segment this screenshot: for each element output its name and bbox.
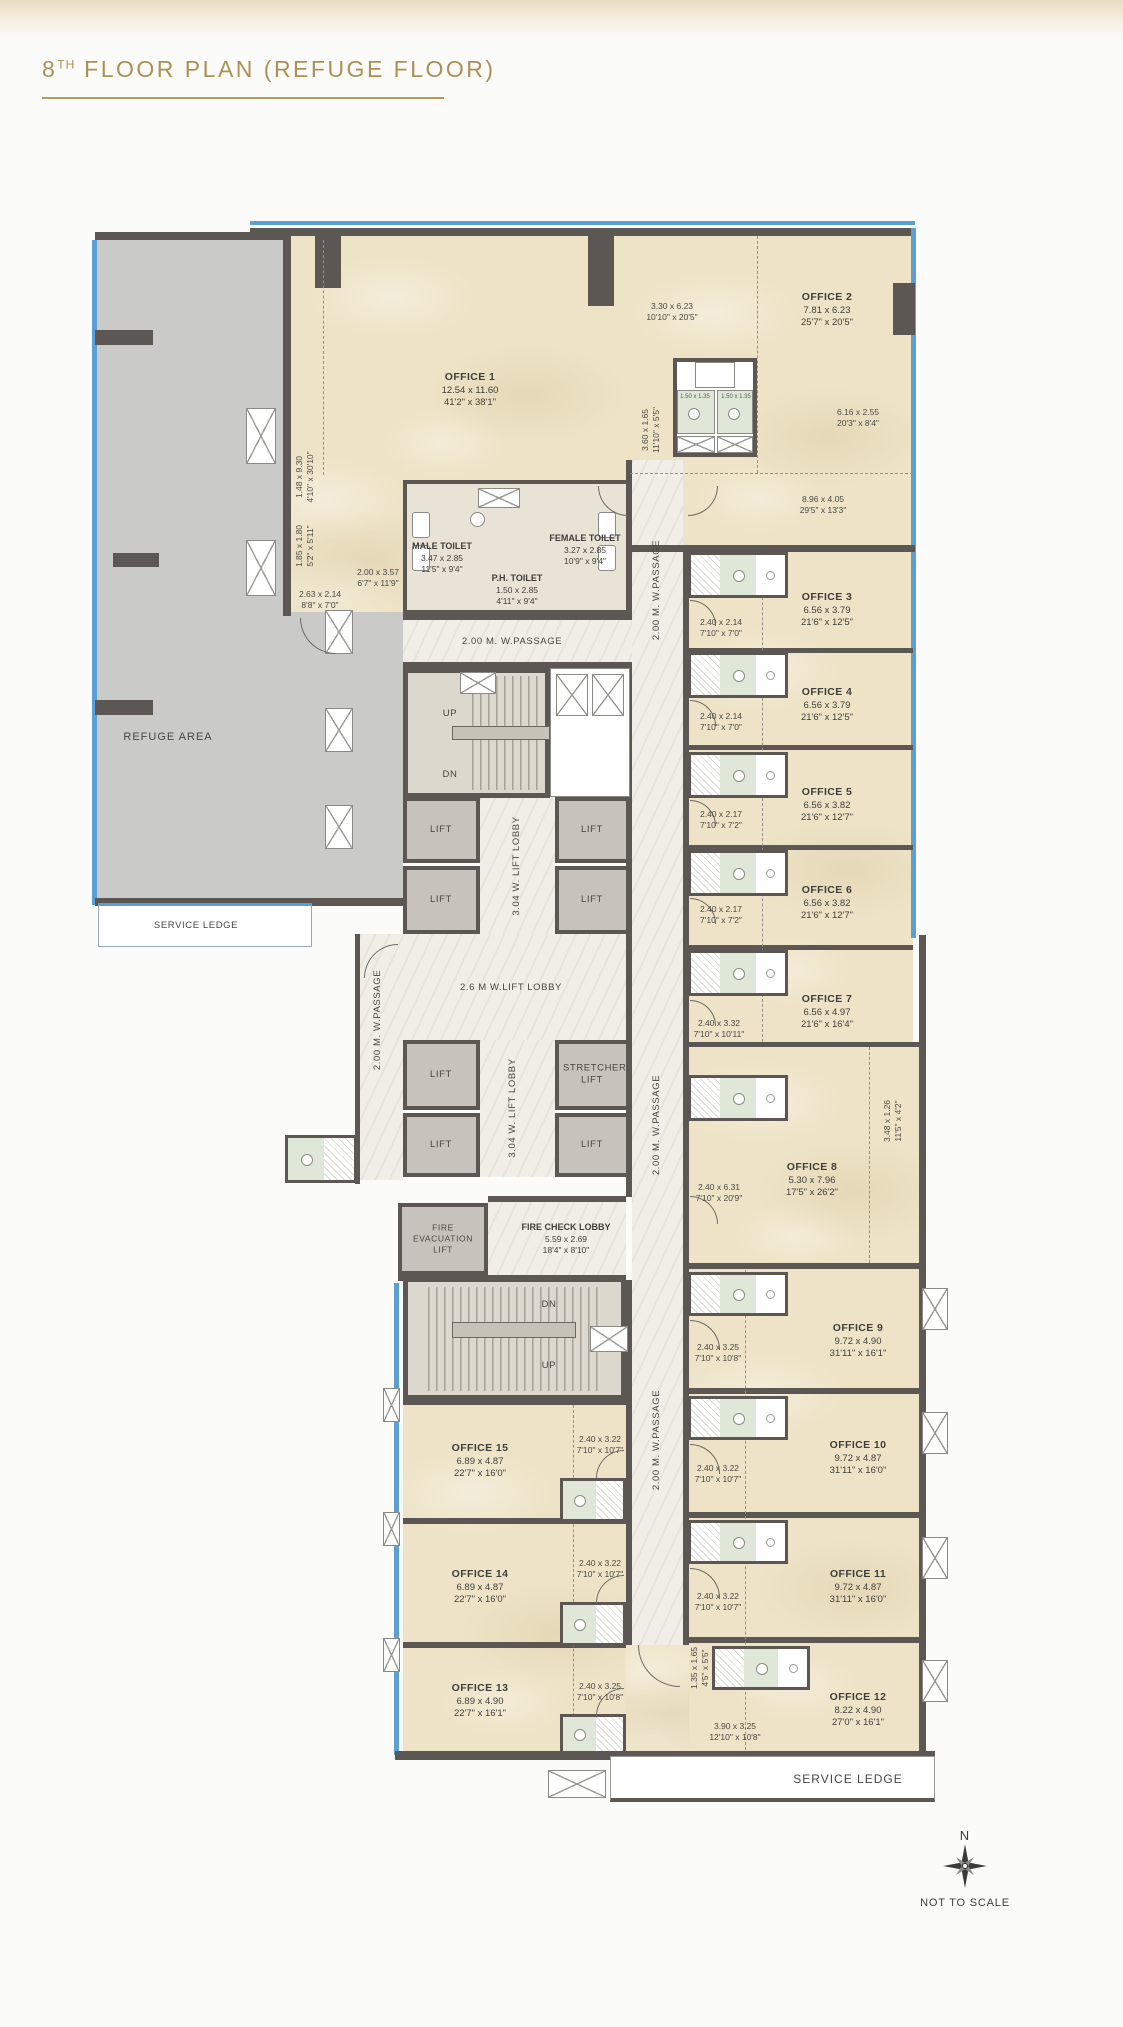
passage-label: 2.00 M. W.PASSAGE (372, 970, 384, 1070)
dim-i: 4'10" x 30'10" (305, 451, 315, 502)
window-column (325, 805, 353, 849)
dim-i: 4'5" x 5'5" (700, 1649, 710, 1686)
toilet-icon (574, 1495, 586, 1507)
toilet-icon (733, 968, 745, 980)
dim-label: 2.40 x 3.227'10" x 10'7" (577, 1558, 624, 1580)
room-dim-i: 4'11" x 9'4" (496, 596, 537, 606)
wc-unit (688, 850, 788, 896)
dim-label: 8.96 x 4.0529'5" x 13'3" (800, 494, 847, 516)
stair-up-label: UP (443, 708, 457, 720)
wall-passage-top (403, 614, 632, 620)
dim-label: 2.40 x 3.257'10" x 10'8" (695, 1342, 742, 1364)
window-column (383, 1638, 400, 1672)
office-13-label: OFFICE 136.89 x 4.9022'7" x 16'1" (452, 1682, 509, 1720)
dim-label: 2.00 x 3.576'7" x 11'9" (357, 567, 399, 589)
stair-landing (452, 726, 550, 740)
wc-cell (563, 1717, 596, 1751)
office-8-label: OFFICE 85.30 x 7.9617'5" x 26'2" (786, 1161, 838, 1199)
dashed-line (869, 1047, 870, 1263)
stair-up-label: UP (542, 1360, 556, 1372)
office-name: OFFICE 3 (801, 591, 853, 605)
dim-i: 5'2" x 5'11" (305, 525, 315, 566)
office-name: OFFICE 13 (452, 1682, 509, 1696)
office-dim-m: 9.72 x 4.90 (834, 1335, 881, 1346)
fire-evacuation-lift-label: FIRE EVACUATION LIFT (404, 1222, 482, 1255)
office-dim-i: 21'6" x 12'5" (801, 617, 853, 628)
toilet-icon (733, 1537, 745, 1549)
dim-label: 2.40 x 2.147'10" x 7'0" (700, 711, 742, 733)
stair-dn-label: DN (443, 769, 458, 781)
office-dim-m: 8.22 x 4.90 (834, 1704, 881, 1715)
office-dim-i: 17'5" x 26'2" (786, 1187, 838, 1198)
entry-shelf (756, 1078, 785, 1118)
passage-label: 2.00 M. W.PASSAGE (651, 1075, 663, 1175)
dim-i: 11'10" x 5'5" (651, 407, 661, 453)
window-column (246, 408, 276, 464)
shaft-vent (556, 674, 588, 716)
toilet-icon (733, 1093, 745, 1105)
dim-i: 7'10" x 7'2" (700, 820, 742, 830)
stair-treads (428, 1287, 600, 1391)
toilet-icon (733, 868, 745, 880)
wc-cell (288, 1138, 324, 1180)
office-dim-i: 21'6" x 12'5" (801, 712, 853, 723)
office-name: OFFICE 1 (442, 371, 499, 385)
male-toilet-label: MALE TOILET3.47 x 2.8511'5" x 9'4" (412, 541, 472, 575)
toilet-icon (574, 1729, 586, 1741)
dim-label: 2.40 x 3.257'10" x 10'8" (577, 1681, 624, 1703)
room-dim-m: 5.59 x 2.69 (545, 1234, 587, 1244)
refuge-area-floor-2 (283, 612, 403, 905)
passage-label: 2.00 M. W.PASSAGE (462, 636, 562, 648)
column-stub (893, 283, 915, 335)
dim-label: 3.60 x 1.6511'10" x 5'5" (640, 407, 662, 453)
office-name: OFFICE 2 (801, 291, 853, 305)
toilet-icon (733, 570, 745, 582)
office-11-label: OFFICE 119.72 x 4.8731'11" x 16'0" (830, 1568, 887, 1606)
office-name: OFFICE 4 (801, 686, 853, 700)
office-12-label: OFFICE 128.22 x 4.9027'0" x 16'1" (830, 1691, 887, 1729)
wc-dim-label: 1.50 x 1.35 (680, 394, 710, 402)
shaft-vent (592, 674, 624, 716)
shaft-hatch (691, 1078, 720, 1118)
wall-right-lower (919, 935, 926, 1760)
wall-fire-lobby-top (488, 1196, 626, 1202)
office-9-label: OFFICE 99.72 x 4.9031'11" x 16'1" (830, 1322, 887, 1360)
dim-i: 8'8" x 7'0" (301, 600, 338, 610)
office-15-label: OFFICE 156.89 x 4.8722'7" x 16'0" (452, 1442, 509, 1480)
room-dim-m: 1.50 x 2.85 (496, 585, 538, 595)
compass-rose-icon (942, 1843, 988, 1889)
room-dim-i: 11'5" x 9'4" (421, 564, 462, 574)
office-name: OFFICE 14 (452, 1568, 509, 1582)
dim-label: 2.40 x 2.177'10" x 7'2" (700, 904, 742, 926)
shaft-hatch (691, 555, 720, 595)
office-dim-i: 31'11" x 16'0" (830, 1594, 887, 1605)
toilet-fixture (412, 512, 430, 538)
office-6-label: OFFICE 66.56 x 3.8221'6" x 12'7" (801, 884, 853, 922)
office-dim-i: 22'7" x 16'0" (454, 1468, 506, 1479)
meter-box (695, 362, 735, 388)
washbasin-icon (766, 1290, 775, 1299)
entry-shelf (756, 755, 785, 795)
washbasin-icon (766, 869, 775, 878)
dim-i: 7'10" x 10'7" (577, 1445, 624, 1455)
column-stub (315, 236, 341, 288)
dim-m: 2.40 x 3.25 (579, 1681, 621, 1691)
dim-m: 2.40 x 3.25 (697, 1342, 739, 1352)
office-dim-m: 5.30 x 7.96 (788, 1174, 835, 1185)
washbasin-icon (766, 969, 775, 978)
dim-m: 2.40 x 6.31 (698, 1182, 740, 1192)
wc-unit (688, 752, 788, 798)
washbasin (470, 512, 485, 527)
office-5-label: OFFICE 56.56 x 3.8221'6" x 12'7" (801, 786, 853, 824)
lift-label: LIFT (430, 1069, 452, 1081)
washbasin-icon (766, 1414, 775, 1423)
office-dim-i: 21'6" x 12'7" (801, 910, 853, 921)
entry-shelf (756, 555, 785, 595)
office-name: OFFICE 10 (830, 1439, 887, 1453)
shaft-hatch (324, 1138, 354, 1180)
office-dim-m: 6.56 x 3.82 (803, 799, 850, 810)
office-10-label: OFFICE 109.72 x 4.8731'11" x 16'0" (830, 1439, 887, 1477)
office-dim-i: 31'11" x 16'0" (830, 1465, 887, 1476)
dim-i: 7'10" x 10'7" (695, 1474, 742, 1484)
wc-cell (720, 1078, 755, 1118)
not-to-scale-label: NOT TO SCALE (920, 1897, 1010, 1909)
wc-dim-label: 1.50 x 1.35 (721, 394, 751, 402)
office-dim-m: 12.54 x 11.60 (442, 384, 499, 395)
dim-i: 7'10" x 7'0" (700, 722, 742, 732)
office-dim-m: 9.72 x 4.87 (834, 1581, 881, 1592)
washbasin-icon (766, 1538, 775, 1547)
dim-m: 2.40 x 3.22 (697, 1463, 739, 1473)
toilet-icon (733, 770, 745, 782)
dim-m: 3.30 x 6.23 (651, 301, 693, 311)
office-dim-m: 6.56 x 3.79 (803, 604, 850, 615)
window-column (246, 540, 276, 596)
dim-i: 7'10" x 7'0" (700, 628, 742, 638)
room-dim-i: 10'9" x 9'4" (564, 556, 606, 566)
shaft-vent (590, 1326, 628, 1352)
room-dim-m: 3.47 x 2.85 (421, 553, 463, 563)
office-1-floor (290, 236, 630, 480)
entry-shelf (756, 1399, 785, 1437)
compass-north-label: N (960, 1828, 970, 1843)
office-3-label: OFFICE 36.56 x 3.7921'6" x 12'5" (801, 591, 853, 629)
shaft-hatch (691, 655, 720, 695)
office-name: OFFICE 5 (801, 786, 853, 800)
dim-m: 3.60 x 1.65 (640, 409, 650, 451)
office-dim-i: 21'6" x 16'4" (801, 1019, 853, 1030)
dim-i: 7'10" x 10'11" (694, 1029, 745, 1039)
wall-div-office-9-10 (689, 1388, 919, 1394)
dim-i: 11'5" x 4'2" (893, 1100, 903, 1141)
dim-label: 2.63 x 2.148'8" x 7'0" (299, 589, 341, 611)
toilet-icon (574, 1619, 586, 1631)
office-dim-m: 6.56 x 3.82 (803, 897, 850, 908)
washbasin-icon (766, 771, 775, 780)
dim-m: 2.40 x 3.22 (579, 1434, 621, 1444)
dim-m: 2.40 x 2.17 (700, 904, 742, 914)
wc-unit (688, 652, 788, 698)
dim-m: 2.40 x 3.22 (579, 1558, 621, 1568)
wc-unit (688, 1520, 788, 1564)
office-1-label: OFFICE 112.54 x 11.6041'2" x 38'1" (442, 371, 499, 409)
office-14-label: OFFICE 146.89 x 4.8722'7" x 16'0" (452, 1568, 509, 1606)
wall-stub-refuge (95, 330, 153, 345)
wc-cell (720, 1399, 755, 1437)
shaft-hatch (691, 953, 720, 993)
dashed-line (323, 240, 324, 475)
room-name: MALE TOILET (412, 541, 472, 553)
washbasin-icon (789, 1664, 798, 1673)
wc-cell (720, 853, 755, 893)
room-name: P.H. TOILET (492, 573, 543, 585)
glazing-top (250, 221, 915, 225)
dim-i: 12'10" x 10'8" (709, 1732, 760, 1742)
office-dim-m: 6.56 x 3.79 (803, 699, 850, 710)
dim-i: 7'10" x 20'9" (696, 1193, 743, 1203)
office-name: OFFICE 6 (801, 884, 853, 898)
toilet-icon (733, 1289, 745, 1301)
dim-i: 10'10" x 20'5" (646, 312, 697, 322)
wall-stub-refuge (113, 553, 159, 567)
window-column (325, 708, 353, 752)
wc-unit (560, 1602, 626, 1646)
toilet-fixture (688, 408, 700, 420)
window-column (922, 1288, 948, 1330)
dim-m: 2.40 x 2.17 (700, 809, 742, 819)
entry-shelf (756, 655, 785, 695)
office-name: OFFICE 12 (830, 1691, 887, 1705)
dim-label: 1.35 x 1.654'5" x 5'5" (689, 1647, 711, 1689)
wall-under-band (630, 545, 915, 552)
wall-div-office-8-9 (689, 1263, 919, 1269)
wc-cell (720, 1523, 755, 1561)
entry-shelf (778, 1649, 807, 1687)
wc-unit (688, 1075, 788, 1121)
washbasin-icon (766, 671, 775, 680)
shaft-hatch (691, 1523, 720, 1561)
entry-shelf (756, 1275, 785, 1313)
dim-i: 7'10" x 10'8" (577, 1692, 624, 1702)
dashed-line (573, 1405, 574, 1751)
window-column (922, 1412, 948, 1454)
wc-unit (688, 1272, 788, 1316)
floor-plan: OFFICE 112.54 x 11.6041'2" x 38'1" OFFIC… (0, 0, 1123, 2027)
lift-label: LIFT (581, 894, 603, 906)
toilet-icon (733, 1413, 745, 1425)
lift-lobby-label: 3.04 W. LIFT LOBBY (511, 816, 523, 915)
lift-label: LIFT (430, 1139, 452, 1151)
shaft-vent (677, 436, 715, 453)
office-7-label: OFFICE 76.56 x 4.9721'6" x 16'4" (801, 993, 853, 1031)
wc-cell (720, 1275, 755, 1313)
room-dim-i: 18'4" x 8'10" (543, 1245, 590, 1255)
wc-unit (688, 950, 788, 996)
office-dim-i: 41'2" x 38'1" (444, 397, 496, 408)
washbasin-icon (766, 571, 775, 580)
wc-cell (563, 1481, 596, 1519)
office-dim-m: 6.89 x 4.87 (456, 1455, 503, 1466)
office-dim-i: 22'7" x 16'0" (454, 1594, 506, 1605)
refuge-area-label: REFUGE AREA (123, 730, 212, 744)
wall-top (250, 228, 915, 236)
shaft-hatch (691, 1399, 720, 1437)
office-dim-i: 31'11" x 16'1" (830, 1348, 887, 1359)
room-name: FIRE CHECK LOBBY (521, 1222, 610, 1234)
shaft-hatch (596, 1481, 623, 1519)
passage-label: 2.00 M. W.PASSAGE (651, 540, 663, 640)
office-name: OFFICE 8 (786, 1161, 838, 1175)
entry-shelf (756, 1523, 785, 1561)
dim-label: 2.40 x 3.227'10" x 10'7" (695, 1463, 742, 1485)
wc-cell (563, 1605, 596, 1643)
shaft-hatch (596, 1717, 623, 1751)
office-dim-i: 21'6" x 12'7" (801, 812, 853, 823)
dim-m: 8.96 x 4.05 (802, 494, 844, 504)
entry-shelf (756, 953, 785, 993)
office-2-label: OFFICE 27.81 x 6.2325'7" x 20'5" (801, 291, 853, 329)
office-name: OFFICE 9 (830, 1322, 887, 1336)
room-name: FEMALE TOILET (549, 533, 620, 545)
office-dim-m: 6.89 x 4.87 (456, 1581, 503, 1592)
office-dim-m: 6.89 x 4.90 (456, 1695, 503, 1706)
shaft-vent (478, 488, 520, 508)
window-column (383, 1388, 400, 1422)
wall-office-block-left (283, 236, 291, 616)
service-ledge-label: SERVICE LEDGE (154, 920, 238, 932)
dim-label: 2.40 x 2.177'10" x 7'2" (700, 809, 742, 831)
stretcher-lift-label: STRETCHER LIFT (563, 1063, 621, 1088)
dim-i: 29'5" x 13'3" (800, 505, 847, 515)
dim-i: 6'7" x 11'9" (357, 578, 398, 588)
office-dim-m: 6.56 x 4.97 (803, 1006, 850, 1017)
office-name: OFFICE 7 (801, 993, 853, 1007)
entry-shelf (756, 853, 785, 893)
dim-label: 2.40 x 2.147'10" x 7'0" (700, 617, 742, 639)
dim-m: 2.40 x 3.32 (698, 1018, 740, 1028)
dim-m: 2.63 x 2.14 (299, 589, 341, 599)
dim-label: 3.90 x 3.2512'10" x 10'8" (709, 1721, 760, 1743)
compass: N NOT TO SCALE (907, 1828, 1023, 1909)
shaft-hatch (596, 1605, 623, 1643)
dim-label: 2.40 x 3.327'10" x 10'11" (694, 1018, 745, 1040)
shaft-hatch (691, 853, 720, 893)
washbasin-icon (766, 1094, 775, 1103)
shaft-vent (548, 1770, 606, 1798)
wall-stub-refuge (95, 700, 153, 715)
wc-unit (712, 1646, 810, 1690)
dim-m: 1.35 x 1.65 (689, 1647, 699, 1689)
shaft-hatch (715, 1649, 744, 1687)
wall-div-office-10-11 (689, 1512, 919, 1518)
wc-cell (720, 953, 755, 993)
dim-m: 1.48 x 9.30 (294, 456, 304, 498)
toilet-icon (301, 1154, 313, 1166)
dim-i: 7'10" x 7'2" (700, 915, 742, 925)
office-name: OFFICE 15 (452, 1442, 509, 1456)
toilet-fixture (728, 408, 740, 420)
shaft-vent (717, 436, 753, 453)
dim-m: 2.40 x 2.14 (700, 617, 742, 627)
dim-m: 2.40 x 2.14 (700, 711, 742, 721)
wall-refuge-top (95, 232, 291, 240)
stair-landing (452, 1322, 576, 1338)
female-toilet-label: FEMALE TOILET3.27 x 2.8510'9" x 9'4" (549, 533, 620, 567)
wc-unit (688, 552, 788, 598)
toilet-icon (733, 670, 745, 682)
wc-unit (560, 1714, 626, 1754)
lift-label: LIFT (581, 824, 603, 836)
office-dim-m: 9.72 x 4.87 (834, 1452, 881, 1463)
dim-m: 6.16 x 2.55 (837, 407, 879, 417)
office-4-label: OFFICE 46.56 x 3.7921'6" x 12'5" (801, 686, 853, 724)
window-column (383, 1512, 400, 1546)
office-dim-i: 22'7" x 16'1" (454, 1708, 506, 1719)
dim-label: 3.30 x 6.2310'10" x 20'5" (646, 301, 697, 323)
office-dim-m: 7.81 x 6.23 (803, 304, 850, 315)
dim-m: 2.40 x 3.22 (697, 1591, 739, 1601)
room-dim-m: 3.27 x 2.85 (564, 545, 606, 555)
dim-label: 3.48 x 1.2611'5" x 4'2" (882, 1100, 904, 1142)
wc-unit (285, 1135, 357, 1183)
wc-cell (744, 1649, 779, 1687)
stair-dn-label: DN (542, 1299, 557, 1311)
dim-i: 7'10" x 10'7" (577, 1569, 624, 1579)
wc-unit (688, 1396, 788, 1440)
shaft-hatch (691, 755, 720, 795)
lift-label: LIFT (430, 824, 452, 836)
window-column (922, 1537, 948, 1579)
lift-lobby-label: 2.6 M W.LIFT LOBBY (460, 982, 562, 994)
lift-label: LIFT (430, 894, 452, 906)
dashed-line (630, 473, 913, 474)
window-column (922, 1660, 948, 1702)
dim-m: 3.48 x 1.26 (882, 1100, 892, 1142)
dim-label: 1.48 x 9.304'10" x 30'10" (294, 451, 316, 502)
ph-toilet-label: P.H. TOILET1.50 x 2.854'11" x 9'4" (492, 573, 543, 607)
dashed-line (757, 236, 758, 473)
dim-i: 7'10" x 10'7" (695, 1602, 742, 1612)
wc-unit (560, 1478, 626, 1522)
dim-label: 2.40 x 3.227'10" x 10'7" (695, 1591, 742, 1613)
office-dim-i: 27'0" x 16'1" (832, 1717, 884, 1728)
dim-m: 2.00 x 3.57 (357, 567, 399, 577)
toilet-icon (756, 1663, 768, 1675)
dim-m: 3.90 x 3.25 (714, 1721, 756, 1731)
wc-cell (720, 555, 755, 595)
fire-check-lobby-label: FIRE CHECK LOBBY5.59 x 2.6918'4" x 8'10" (521, 1222, 610, 1256)
office-name: OFFICE 11 (830, 1568, 887, 1582)
lift-lobby-label: 3.04 W. LIFT LOBBY (507, 1058, 519, 1157)
column-stub (588, 236, 614, 306)
wc-cell (720, 655, 755, 695)
shaft-vent (460, 672, 496, 694)
wall-div-office-11-12 (689, 1637, 919, 1643)
dim-label: 6.16 x 2.5520'3" x 8'4" (837, 407, 879, 429)
office-dim-i: 25'7" x 20'5" (801, 317, 853, 328)
dim-label: 1.85 x 1.805'2" x 5'11" (294, 525, 316, 567)
dim-label: 2.40 x 6.317'10" x 20'9" (696, 1182, 743, 1204)
dim-i: 20'3" x 8'4" (837, 418, 879, 428)
dim-label: 2.40 x 3.227'10" x 10'7" (577, 1434, 624, 1456)
passage-label: 2.00 M. W.PASSAGE (651, 1390, 663, 1490)
wc-cell (720, 755, 755, 795)
wall-div-office-7-8 (689, 1042, 919, 1047)
